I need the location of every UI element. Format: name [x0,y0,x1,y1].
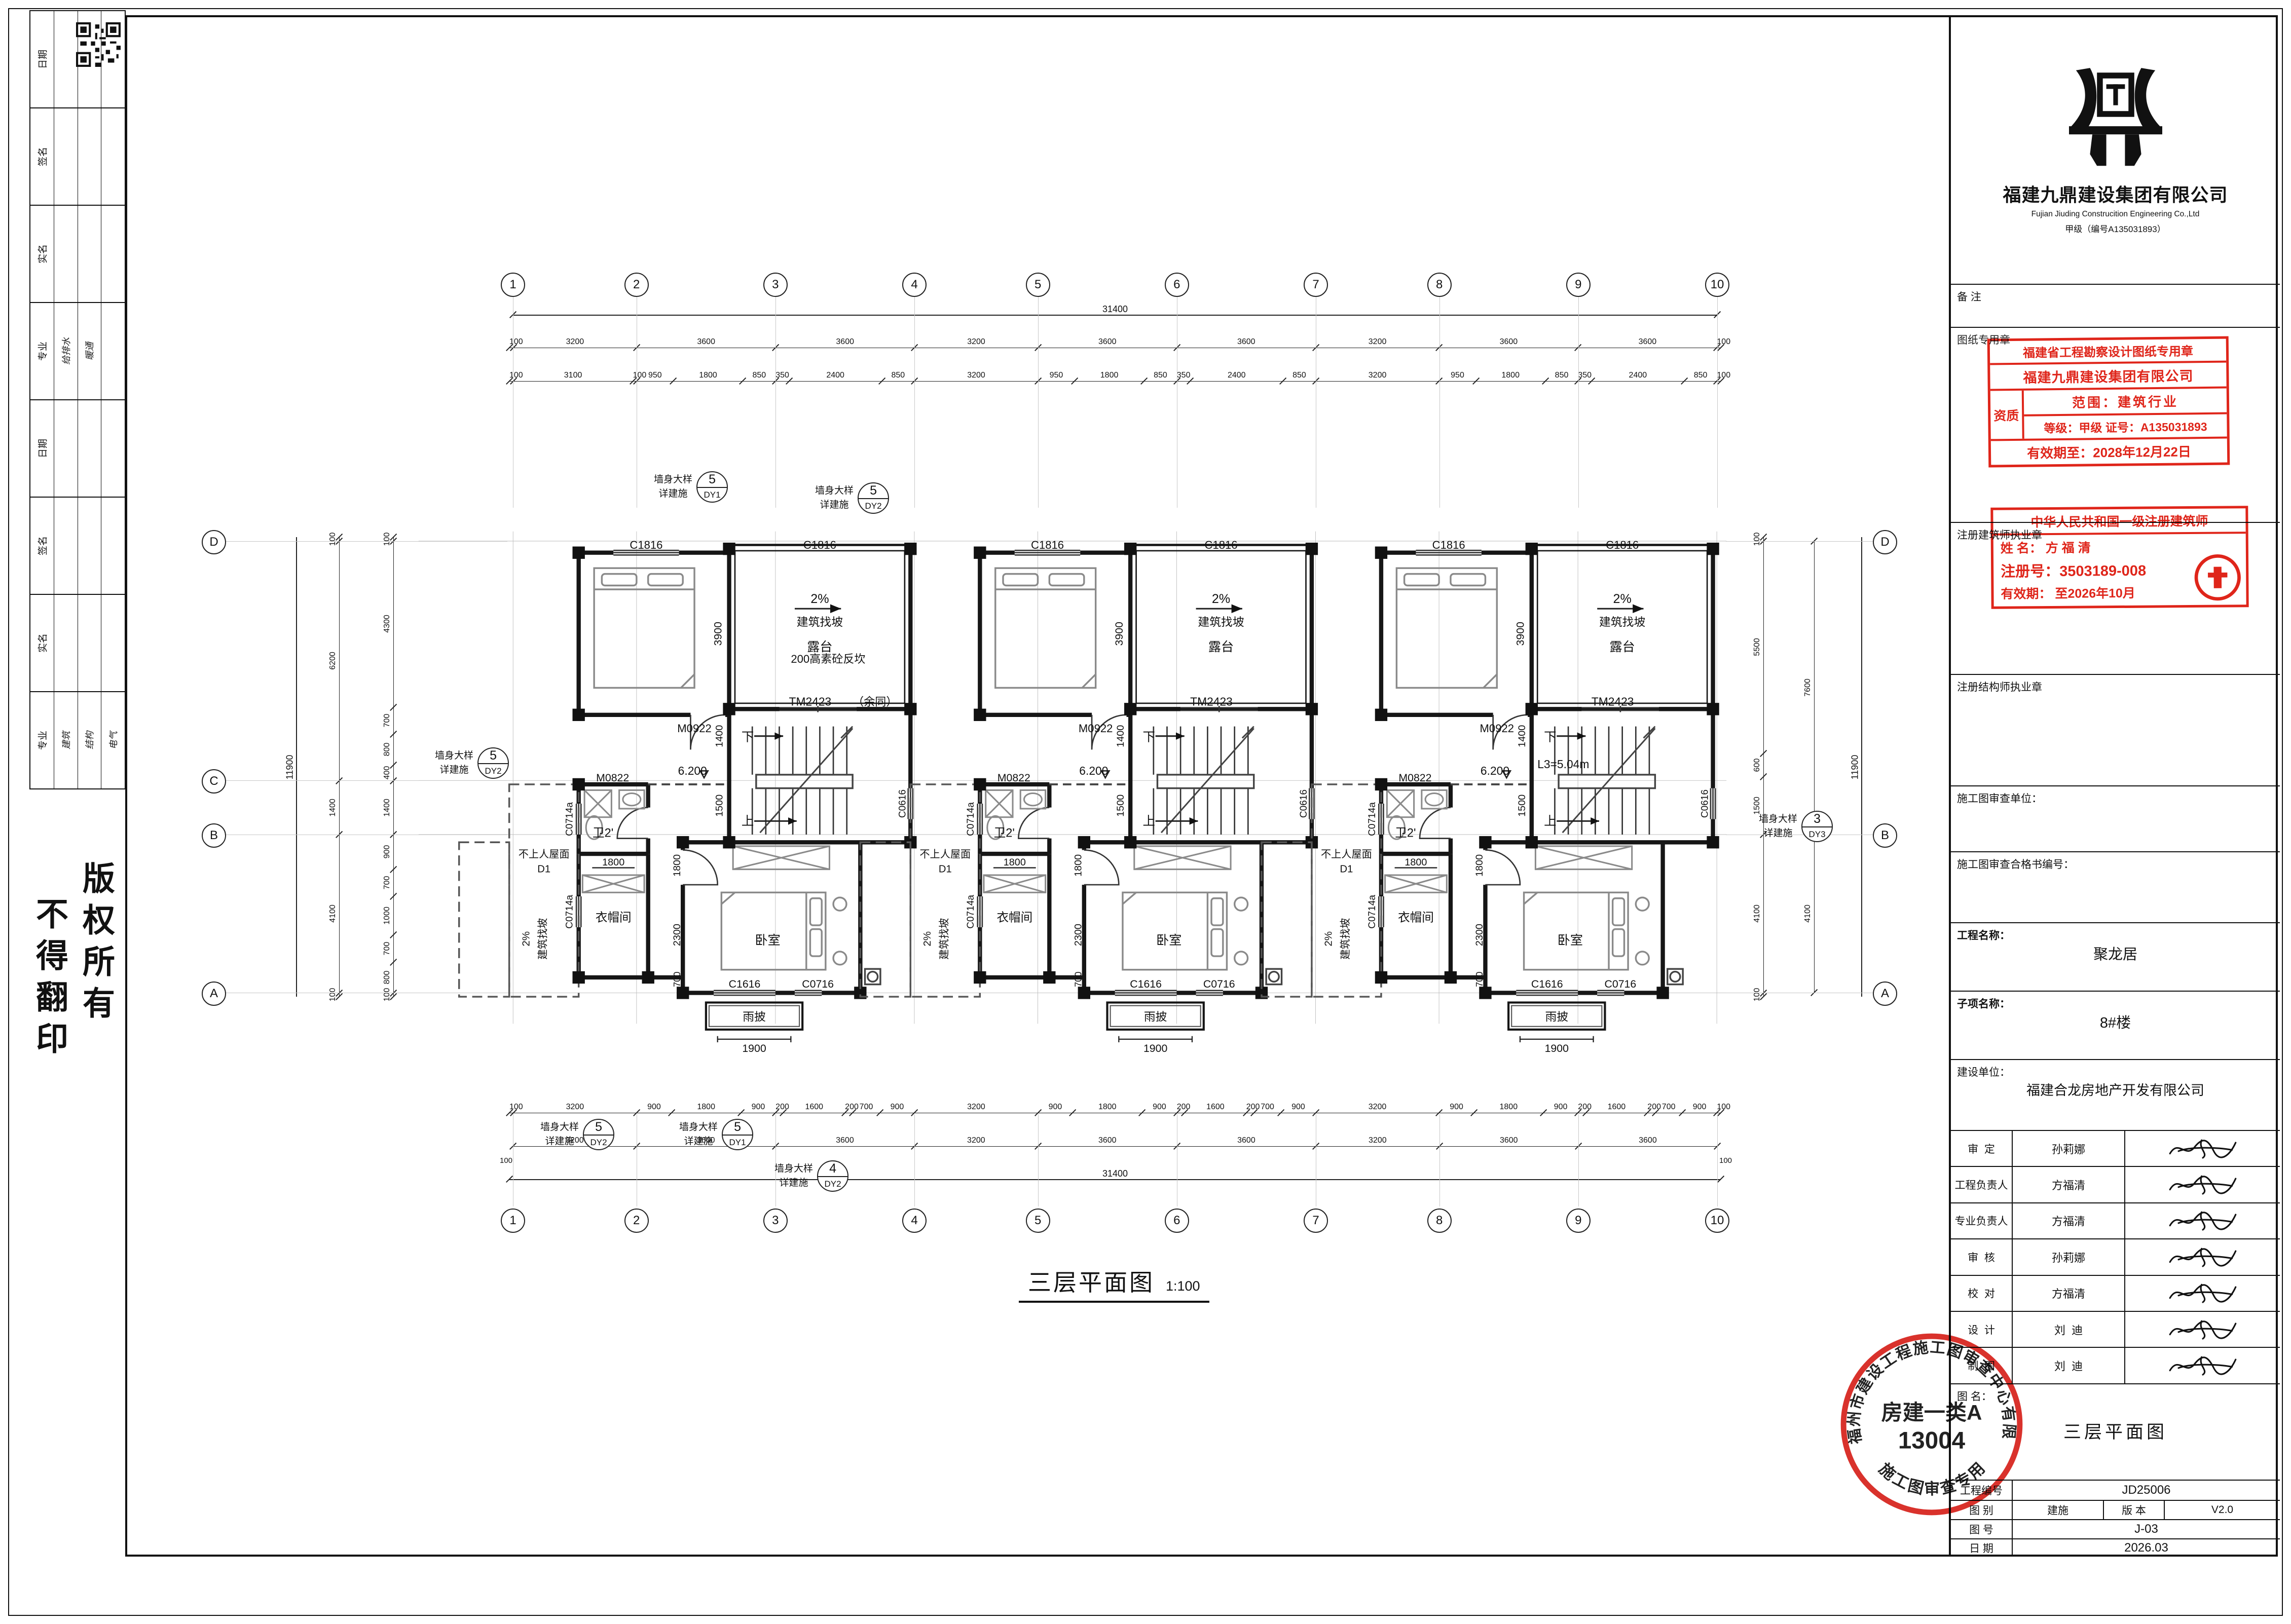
grid-cell: 6 [1038,1208,1177,1231]
version: V2.0 [2165,1501,2280,1519]
signoff-band: 签名 [30,498,125,595]
signature-scribble [2125,1239,2280,1274]
registered-architect-stamp: 中华人民共和国一级注册建筑师 姓 名： 方 福 清 注册号：3503189-00… [1990,506,2248,609]
grid-cell: 7 [1177,273,1316,295]
label-roof-tag: D1 [537,864,550,875]
signoff-entry-cell [78,400,102,497]
grid-bubble: 10 [1705,1208,1729,1233]
label-c0716: C0716 [802,978,834,990]
dim-segment: 350 [775,369,789,382]
callout-dy2-left: 墙身大样详建施 5DY2 [435,747,509,779]
dim-2300: 2300 [672,924,683,946]
grid-bubble-C-left: C [202,769,226,794]
dim-segment: 3600 [637,335,775,348]
ac-unit [865,969,880,984]
dim-bottom-total: 31400 [509,1168,1721,1180]
row-review-unit: 施工图审查单位： [1951,785,2280,851]
stamp-center-2: 13004 [1898,1427,1966,1454]
grid-bubble: 2 [624,1208,649,1233]
dim-segment: 950 [637,369,673,382]
dim-segment: 200 [775,1101,783,1113]
signoff-entry-cell [78,206,102,302]
signoff-entry-cell [54,595,78,691]
dim-segment: 200 [1647,1101,1655,1113]
signature-scribble [2125,1167,2280,1202]
dim-segment: 850 [1684,369,1717,382]
figure-no: J-03 [2013,1520,2280,1538]
label-m0822: M0822 [596,772,629,784]
dim-segment: 1800 [1073,1101,1142,1113]
dim-segment: 7600 [1802,541,1815,835]
signature-row: 专业负责人 方福清 [1951,1203,2280,1239]
grid-bubbles-top: 12345678910 [513,273,1717,295]
signoff-entry-cell [54,498,78,594]
grid-cell: 5 [914,1208,1038,1231]
dim-segment: 4300 [381,541,394,707]
dim-chain-top-2: 1003100100950180085035024008503200950180… [509,369,1721,382]
grid-bubble: 5 [1026,273,1050,297]
signoff-entry-cell [78,108,102,205]
signoff-entry-cell [101,206,125,302]
dim-segment: 3200 [1316,369,1439,382]
dim-segment: 4100 [1802,835,1815,993]
dim-segment: 3200 [1316,1134,1439,1147]
grid-bubble: 7 [1304,1208,1328,1233]
signature-scribble [2125,1312,2280,1347]
grid-bubble: 2 [624,273,649,297]
dim-segment: 900 [1142,1101,1177,1113]
company-name-en: Fujian Jiuding Construcition Engineering… [2031,210,2200,219]
grid-bubble-B-right: B [1873,823,1897,848]
grid-cell: 4 [775,1208,914,1231]
grid-bubble-D-left: D [202,530,226,554]
row-project-name: 工程名称： 聚龙居 [1951,922,2280,991]
architect-emblem-icon [2193,553,2242,602]
grid-bubble: 6 [1165,1208,1189,1233]
callout-dy2-bottom-2: 墙身大样详建施 4DY2 [774,1160,848,1192]
dwelling-unit: C1816 C1816 2% 建筑找坡 露台 TM2423 M0922 1400… [459,539,917,1054]
closet-wardrobe [582,875,644,892]
signature-scribble [2125,1348,2280,1383]
plan-scale: 1:100 [1166,1278,1200,1294]
dim-segment: 3100 [513,369,633,382]
signature-row: 审 定 孙莉娜 [1951,1131,2280,1167]
dim-segment: 3200 [914,1134,1038,1147]
grid-bubble-B-left: B [202,823,226,848]
roof-strip [459,784,579,997]
dim-segment: 6200 [327,541,340,781]
dim-segment: 200 [1246,1101,1254,1113]
signature-scribble [2125,1203,2280,1238]
signoff-band: 实名 [30,206,125,303]
signoff-entry-cell [101,108,125,205]
dim-segment: 2400 [1592,369,1684,382]
bed [594,568,694,688]
signoff-label-cell: 日期 [30,11,54,107]
dim-segment: 3600 [1578,1134,1717,1147]
grid-bubbles-bottom: 12345678910 [513,1208,1717,1231]
company-block: 福建九鼎建设集团有限公司 Fujian Jiuding Construcitio… [1951,15,2280,284]
label-tm2423: TM2423 [789,695,832,708]
dim-segment: 3600 [1038,1134,1177,1147]
dim-segment: 3200 [1316,335,1439,348]
left-signoff-table: 日期 签名 实名 专业 给排水 暖通 日期 签名 [29,10,126,789]
dim-segment: 2400 [1190,369,1283,382]
columns [573,543,917,999]
grid-bubble: 9 [1566,1208,1591,1233]
dim-segment: 800 [381,734,394,765]
signoff-entry-cell [78,11,102,107]
label-slope-note: 建筑找坡 [797,615,843,628]
dim-segment: 900 [1038,1101,1073,1113]
grid-bubble: 3 [763,273,788,297]
signoff-label-cell: 签名 [30,108,54,205]
floor-plan: C1816 C1816 2% 建筑找坡 露台 TM2423 M0922 1400… [417,530,1728,1059]
signoff-entry-cell [78,498,102,594]
callout-dy1-bottom: 墙身大样详建施 5DY1 [679,1119,753,1150]
label-closet: 衣帽间 [596,911,632,924]
sub-project-name: 8#楼 [1951,1011,2280,1032]
grid-bubble: 4 [902,1208,927,1233]
dim-segment: 100 [381,993,394,997]
signature-scribble [2125,1276,2280,1311]
dim-segment: 1800 [1474,1101,1543,1113]
dim-segment: 100 [381,537,394,541]
drawing-sheet: 日期 签名 实名 专业 给排水 暖通 日期 签名 [0,0,2291,1624]
dim-segment: 3600 [1177,1134,1316,1147]
signoff-entry-cell [54,400,78,497]
dim-700: 700 [672,972,682,988]
grid-bubble: 1 [501,1208,525,1233]
grid-bubble: 6 [1165,273,1189,297]
grid-cell: 5 [914,273,1038,295]
signoff-entry-cell [101,595,125,691]
grid-cell: 10 [1578,273,1717,295]
company-logo [2057,65,2174,171]
signoff-entry-cell: 电气 [101,692,125,788]
grid-bubble-D-right: D [1873,530,1897,554]
grid-cell: 8 [1316,1208,1439,1231]
bedroom2-wardrobe [733,846,829,870]
dim-segment: 3600 [775,335,914,348]
grid-cell: 6 [1038,273,1177,295]
callout-dy2-top: 墙身大样详建施 5DY2 [815,482,889,514]
dim-cap-left: 100 [500,1156,512,1165]
dim-segment: 900 [880,1101,915,1113]
label-m0922: M0922 [677,722,711,735]
grid-cell: 10 [1578,1208,1717,1231]
signoff-label-cell: 实名 [30,206,54,302]
dwelling-unit-3 [1262,539,1719,1054]
label-c1816-terrace: C1816 [803,539,836,551]
signoff-entry-cell: 给排水 [54,303,78,399]
grid-cell: 3 [637,273,775,295]
label-down: 下 [742,731,754,744]
dim-segment: 3200 [914,335,1038,348]
dim-segment: 900 [1281,1101,1316,1113]
dim-segment: 1800 [1476,369,1545,382]
dim-top-total: 31400 [513,304,1717,316]
signature-row: 工程负责人 方福清 [1951,1167,2280,1203]
signoff-entry-cell [78,595,102,691]
dim-segment: 350 [1578,369,1592,382]
dim-segment: 100 [509,1101,513,1113]
window-c0716 [795,991,822,995]
signoff-band: 实名 [30,595,125,692]
dim-segment: 3200 [513,335,637,348]
dim-segment: 700 [381,935,394,962]
dim-segment: 1800 [672,1101,741,1113]
dim-segment: 2400 [789,369,882,382]
signature-row: 校 对 方福清 [1951,1276,2280,1312]
grid-bubble: 8 [1427,1208,1452,1233]
dim-segment: 700 [1655,1101,1682,1113]
project-name: 聚龙居 [1951,942,2280,964]
design-qualification-stamp: 福建省工程勘察设计图纸专用章 福建九鼎建设集团有限公司 资质 范围：建筑行业 等… [1987,336,2230,468]
dim-segment: 900 [381,835,394,870]
grid-cell: 3 [637,1208,775,1231]
dim-segment: 3600 [775,1134,914,1147]
dim-segment: 200 [1177,1101,1185,1113]
dim-segment: 900 [1439,1101,1474,1113]
door-m0922-bedroom [683,850,718,885]
dim-segment: 600 [1751,753,1764,777]
label-terrace: 露台 [807,640,832,654]
dim-segment: 100 [327,537,340,541]
dim-segment: 100 [1751,537,1764,541]
signoff-entry-cell [101,11,125,107]
label-bath: 卫2' [593,827,613,840]
signoff-label-cell: 专业 [30,303,54,399]
dim-segment: 3600 [1439,1134,1578,1147]
signoff-band: 专业 给排水 暖通 [30,303,125,400]
dim-segment: 5500 [1751,541,1764,753]
dim-left-total: 11900 [284,537,297,997]
callout-dy3-right: 墙身大样详建施 3DY3 [1759,811,1833,842]
dim-segment: 3600 [1177,335,1316,348]
grid-cell: 2 [513,1208,637,1231]
dim-segment: 700 [381,869,394,896]
project-no: JD25006 [2013,1481,2280,1500]
row-date: 日 期 2026.03 [1951,1538,2280,1557]
dim-chain-bottom-1: 1003200900180090020016002007009003200900… [509,1101,1721,1113]
label-c0714a: C0714a [565,802,575,836]
dim-segment: 3600 [1439,335,1578,348]
note-upstand2: （余同） [853,695,897,708]
dim-closet-1800: 1800 [602,857,624,868]
signoff-entry-cell: 建筑 [54,692,78,788]
dim-segment: 3200 [1316,1101,1439,1113]
grid-bubble: 5 [1026,1208,1050,1233]
label-roof: 不上人屋面 [519,849,570,860]
label-c1616: C1616 [729,978,761,990]
company-grade: 甲级（编号A135031893） [2065,222,2165,235]
dim-cap-right: 100 [1719,1156,1732,1165]
signoff-entry-cell [54,11,78,107]
signoff-label-cell: 日期 [30,400,54,497]
dim-segment: 950 [1439,369,1475,382]
signoff-entry-cell: 结构 [78,692,102,788]
grid-bubble: 7 [1304,273,1328,297]
grid-cell: 9 [1439,273,1578,295]
label-roof-slope: 2% [520,931,532,947]
dim-segment: 1600 [783,1101,845,1113]
dim-segment: 100 [1751,993,1764,997]
grid-bubble: 3 [763,1208,788,1233]
signoff-band: 日期 [30,11,125,108]
dim-3900: 3900 [712,622,724,646]
dim-segment: 850 [1545,369,1578,382]
label-canopy: 雨披 [743,1010,766,1023]
dim-right-total: 11900 [1849,537,1862,997]
grid-bubble-A-right: A [1873,981,1897,1006]
signature-row: 审 核 孙莉娜 [1951,1239,2280,1275]
dim-segment: 950 [1038,369,1075,382]
bed2 [721,892,846,969]
review-center-round-stamp: 福州市建设工程施工图审查中心有限公司 施工图审查专用章 房建一类A 13004 [1839,1332,2024,1517]
dim-chain-top-1: 1003200360036003200360036003200360036001… [509,335,1721,348]
signoff-band: 日期 [30,400,125,498]
row-review-no: 施工图审查合格书编号： [1951,851,2280,922]
dim-chain-right-mid: 76004100 [1802,541,1815,993]
dim-segment: 200 [1578,1101,1585,1113]
dim-segment: 850 [1144,369,1177,382]
signature-scribble [2125,1131,2280,1166]
grid-cell: 9 [1439,1208,1578,1231]
row-figure-no: 图 号 J-03 [1951,1519,2280,1538]
dim-segment: 850 [882,369,915,382]
dim-1400: 1400 [714,725,725,747]
dim-chain-left-outer: 100620014004100100 [327,537,340,997]
dim-segment: 1600 [1586,1101,1648,1113]
dim-segment: 3200 [914,369,1038,382]
label-level: 6.200 [678,764,707,777]
signoff-entry-cell [101,400,125,497]
dim-segment: 3600 [1038,335,1177,348]
dim-segment: 3200 [513,1101,637,1113]
title-block: 福建九鼎建设集团有限公司 Fujian Jiuding Construcitio… [1949,15,2280,1557]
grid-bubble: 9 [1566,273,1591,297]
dim-chain-right-inner: 100550060015004100100 [1751,537,1764,997]
dim-chain-left-inner: 100430070080040014009007001000700800100 [381,537,394,997]
signoff-band: 专业 建筑 结构 电气 [30,692,125,788]
plan-title-text: 三层平面图 [1028,1269,1155,1296]
date: 2026.03 [2013,1539,2280,1557]
label-bedroom: 卧室 [755,933,781,948]
row-remark: 备 注 [1951,284,2280,327]
dim-segment: 4100 [327,835,340,993]
slope-arrow [830,604,841,613]
note-upstand: 200高素砼反坎 [791,653,865,665]
row-sub-name: 子项名称： 8#楼 [1951,991,2280,1059]
dim-1500: 1500 [714,795,725,817]
signoff-entry-cell: 暖通 [78,303,102,399]
bedroom-top-walls [579,545,729,714]
row-client: 建设单位： 福建合龙房地产开发有限公司 [1951,1059,2280,1130]
dim-segment: 1800 [1075,369,1144,382]
dim-segment: 1600 [1185,1101,1246,1113]
signoff-entry-cell [101,498,125,594]
label-roof-slope-note: 建筑找坡 [537,918,549,960]
figure-type: 建施 [2013,1501,2104,1519]
dim-segment: 900 [1682,1101,1717,1113]
dim-segment: 900 [637,1101,672,1113]
dim-segment: 350 [1177,369,1191,382]
dim-segment: 700 [853,1101,879,1113]
dim-segment: 1800 [673,369,743,382]
plan-title: 三层平面图1:100 [1019,1264,1209,1303]
note-stair-length: L3=5.04m [1537,758,1589,771]
signoff-entry-cell [101,303,125,399]
client-name: 福建合龙房地产开发有限公司 [1951,1079,2280,1099]
grid-bubble: 1 [501,273,525,297]
callout-dy2-bottom: 墙身大样详建施 5DY2 [540,1119,614,1150]
dim-segment: 900 [1543,1101,1578,1113]
grid-bubble-A-left: A [202,981,226,1006]
grid-bubble: 10 [1705,273,1729,297]
grid-cell: 4 [775,273,914,295]
signoff-entry-cell [54,206,78,302]
dim-segment: 100 [327,993,340,997]
dim-segment: 1000 [381,896,394,935]
dim-segment: 850 [743,369,775,382]
grid-cell: 8 [1316,273,1439,295]
grid-cell: 7 [1177,1208,1316,1231]
dim-segment: 900 [741,1101,776,1113]
dim-segment: 200 [845,1101,853,1113]
company-name: 福建九鼎建设集团有限公司 [2003,180,2228,207]
signoff-label-cell: 实名 [30,595,54,691]
label-c1816: C1816 [630,539,662,551]
dwelling-unit-2 [860,539,1318,1054]
door-m0822 [617,808,648,839]
dim-segment: 3600 [1578,335,1717,348]
label-c0714a-2: C0714a [565,895,575,929]
grid-bubble: 8 [1427,273,1452,297]
dim-segment: 3200 [914,1101,1038,1113]
stair-rail [756,775,853,788]
dim-1800: 1800 [672,854,683,877]
grid-cell: 2 [513,273,637,295]
stamp-center-1: 房建一类A [1881,1401,1982,1424]
label-up: 上 [742,815,754,828]
copyright-vertical-text: 版权所有不得翻印 [32,861,114,1520]
signoff-band: 签名 [30,108,125,206]
dim-segment: 850 [1283,369,1316,382]
signoff-label-cell: 专业 [30,692,54,788]
grid-bubble: 4 [902,273,927,297]
signoff-entry-cell [54,108,78,205]
dim-segment: 700 [1254,1101,1281,1113]
dim-segment: 700 [381,707,394,734]
window-c1616 [714,991,775,995]
dim-segment: 1400 [327,780,340,835]
callout-dy1-top: 墙身大样详建施 5DY1 [654,471,728,503]
dim-segment: 1400 [381,780,394,835]
signoff-label-cell: 签名 [30,498,54,594]
dim-segment: 400 [381,765,394,780]
row-structeng-seal: 注册结构师执业章 [1951,674,2280,785]
label-c0616: C0616 [897,789,908,818]
dim-segment: 100 [1717,1101,1721,1113]
label-slope-pct: 2% [810,592,829,606]
dim-canopy: 1900 [742,1042,766,1054]
dim-segment: 4100 [1751,835,1764,993]
